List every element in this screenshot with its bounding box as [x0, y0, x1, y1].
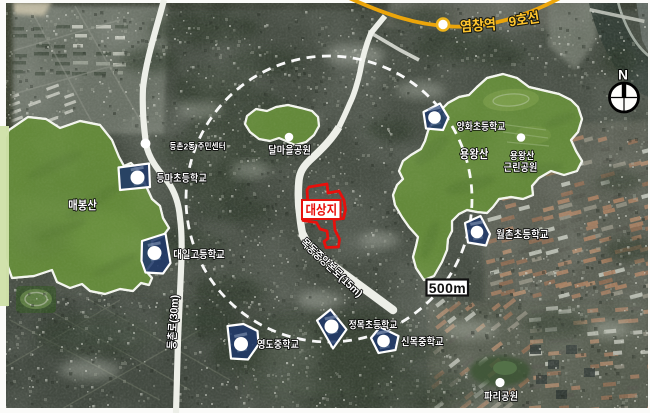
- svg-text:(30m): (30m): [168, 294, 181, 323]
- svg-text:N: N: [618, 68, 628, 83]
- svg-text:500m: 500m: [429, 280, 466, 296]
